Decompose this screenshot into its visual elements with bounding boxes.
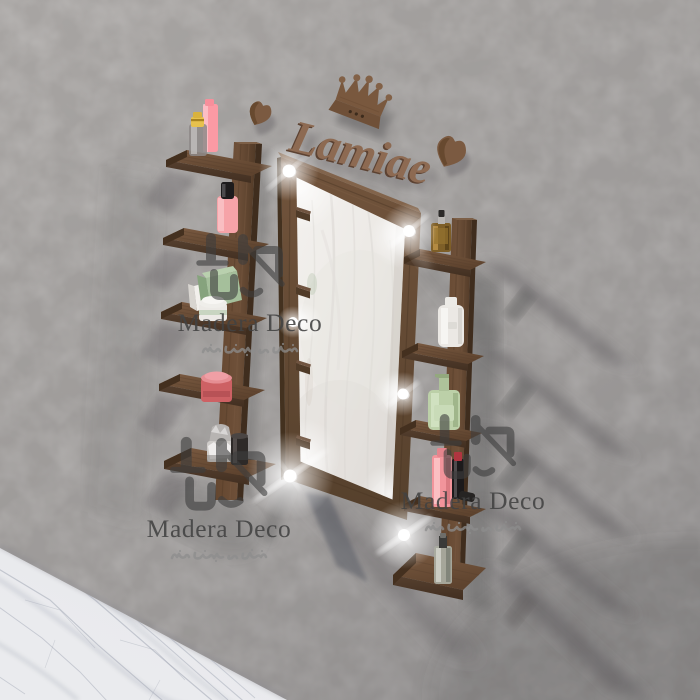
- svg-text:Madera Deco: Madera Deco: [147, 514, 292, 543]
- svg-text:Madera Deco: Madera Deco: [178, 308, 323, 337]
- svg-text:Madera Deco: Madera Deco: [401, 486, 546, 515]
